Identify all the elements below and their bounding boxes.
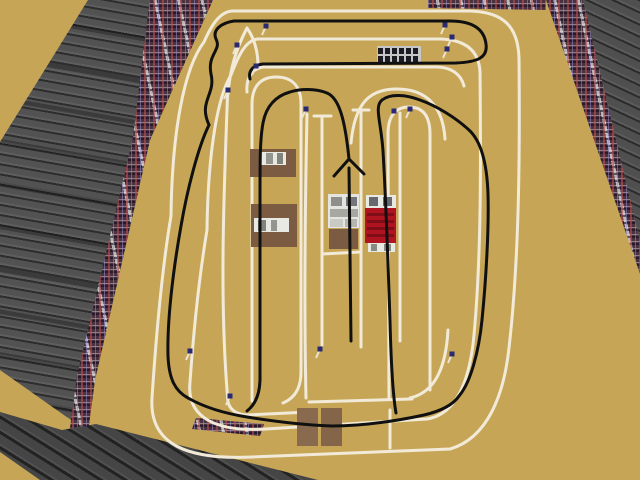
- racing-line-main-loop: [168, 95, 488, 426]
- lane-line-left: [223, 83, 246, 415]
- grid-box-bottom: [322, 252, 361, 254]
- racing-line-top-chicane: [205, 21, 486, 125]
- flatbed-truck-brown-1: [250, 149, 296, 177]
- flatbed-truck-brown-2: [251, 204, 297, 247]
- truck-red-grid: [365, 195, 396, 252]
- crate-brown-1: [297, 408, 318, 446]
- chicane-lower-line: [247, 67, 464, 92]
- checkpoint-marker-icon: [443, 47, 450, 59]
- checkpoint-marker-icon: [448, 352, 455, 364]
- lane-line-mid: [305, 114, 307, 398]
- checkpoint-marker-icon: [262, 24, 269, 36]
- checkpoint-markers: [186, 23, 455, 406]
- checkpoint-marker-icon: [316, 347, 323, 359]
- checkpoint-marker-icon: [441, 23, 448, 35]
- truck-white-grid: [328, 194, 359, 249]
- chicane-left-v: [228, 28, 258, 94]
- game-viewport[interactable]: [0, 0, 640, 480]
- bottom-lane-edge: [309, 399, 412, 402]
- right-hairpin-island: [388, 107, 430, 398]
